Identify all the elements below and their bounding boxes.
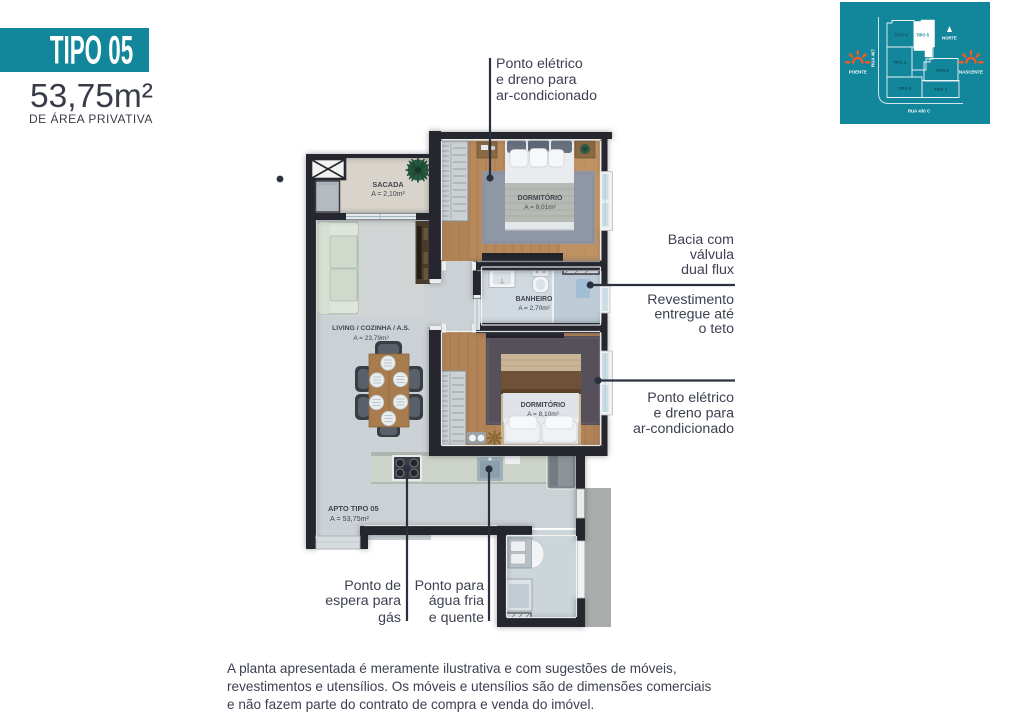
svg-text:TIPO 5: TIPO 5 [916,33,930,38]
svg-text:água fria: água fria [429,593,484,609]
svg-text:NASCENTE: NASCENTE [959,70,983,75]
svg-text:SACADA: SACADA [372,180,404,189]
svg-text:A = 53,75m²: A = 53,75m² [330,514,370,523]
svg-text:POENTE: POENTE [849,70,867,75]
svg-text:A planta apresentada é meramen: A planta apresentada é meramente ilustra… [227,661,677,676]
svg-text:ar-condicionado: ar-condicionado [633,421,734,437]
svg-text:DORMITÓRIO: DORMITÓRIO [518,193,563,202]
svg-text:A = 2,10m²: A = 2,10m² [371,191,405,198]
svg-text:Ponto elétrico: Ponto elétrico [496,56,583,72]
svg-text:ar-condicionado: ar-condicionado [496,88,597,104]
svg-text:A = 8,10m²: A = 8,10m² [527,411,559,418]
svg-text:Ponto para: Ponto para [415,578,485,594]
svg-text:APTO TIPO 05: APTO TIPO 05 [328,504,379,513]
svg-text:e dreno para: e dreno para [496,72,577,88]
svg-text:válvula: válvula [690,247,734,263]
svg-text:dual flux: dual flux [681,262,734,278]
svg-text:A = 23,79m²: A = 23,79m² [353,335,389,342]
svg-text:espera para: espera para [325,593,401,609]
svg-text:BANHEIRO: BANHEIRO [516,296,553,303]
svg-text:TIPO 1: TIPO 1 [934,87,948,92]
svg-text:TIPO 05: TIPO 05 [50,28,133,72]
svg-text:TIPO 4: TIPO 4 [895,33,909,38]
svg-text:NORTE: NORTE [942,36,957,41]
svg-text:DORMITÓRIO: DORMITÓRIO [521,400,566,409]
svg-text:e não fazem parte do contrato: e não fazem parte do contrato de compra … [227,697,594,712]
svg-text:revestimentos e utensílios. Os: revestimentos e utensílios. Os móveis e … [227,679,712,694]
svg-text:A = 9,01m²: A = 9,01m² [524,204,556,211]
svg-text:TIPO 2: TIPO 2 [898,86,912,91]
svg-text:A = 2,70m²: A = 2,70m² [518,305,550,312]
svg-text:RUA 467: RUA 467 [871,49,876,67]
svg-text:53,75m²: 53,75m² [30,78,153,115]
svg-text:e dreno para: e dreno para [654,406,735,422]
svg-text:TIPO 3: TIPO 3 [893,60,907,65]
svg-text:gás: gás [378,610,401,626]
svg-text:LIVING / COZINHA / A.S.: LIVING / COZINHA / A.S. [332,325,410,332]
svg-text:DE ÁREA PRIVATIVA: DE ÁREA PRIVATIVA [29,111,153,126]
svg-text:o teto: o teto [699,321,735,337]
svg-text:Bacia com: Bacia com [668,232,734,248]
svg-text:TIPO 6: TIPO 6 [936,68,950,73]
svg-text:RUA 430 C: RUA 430 C [908,109,931,114]
svg-text:Ponto elétrico: Ponto elétrico [647,390,734,406]
svg-text:e quente: e quente [429,610,484,626]
svg-text:Ponto de: Ponto de [344,578,401,594]
